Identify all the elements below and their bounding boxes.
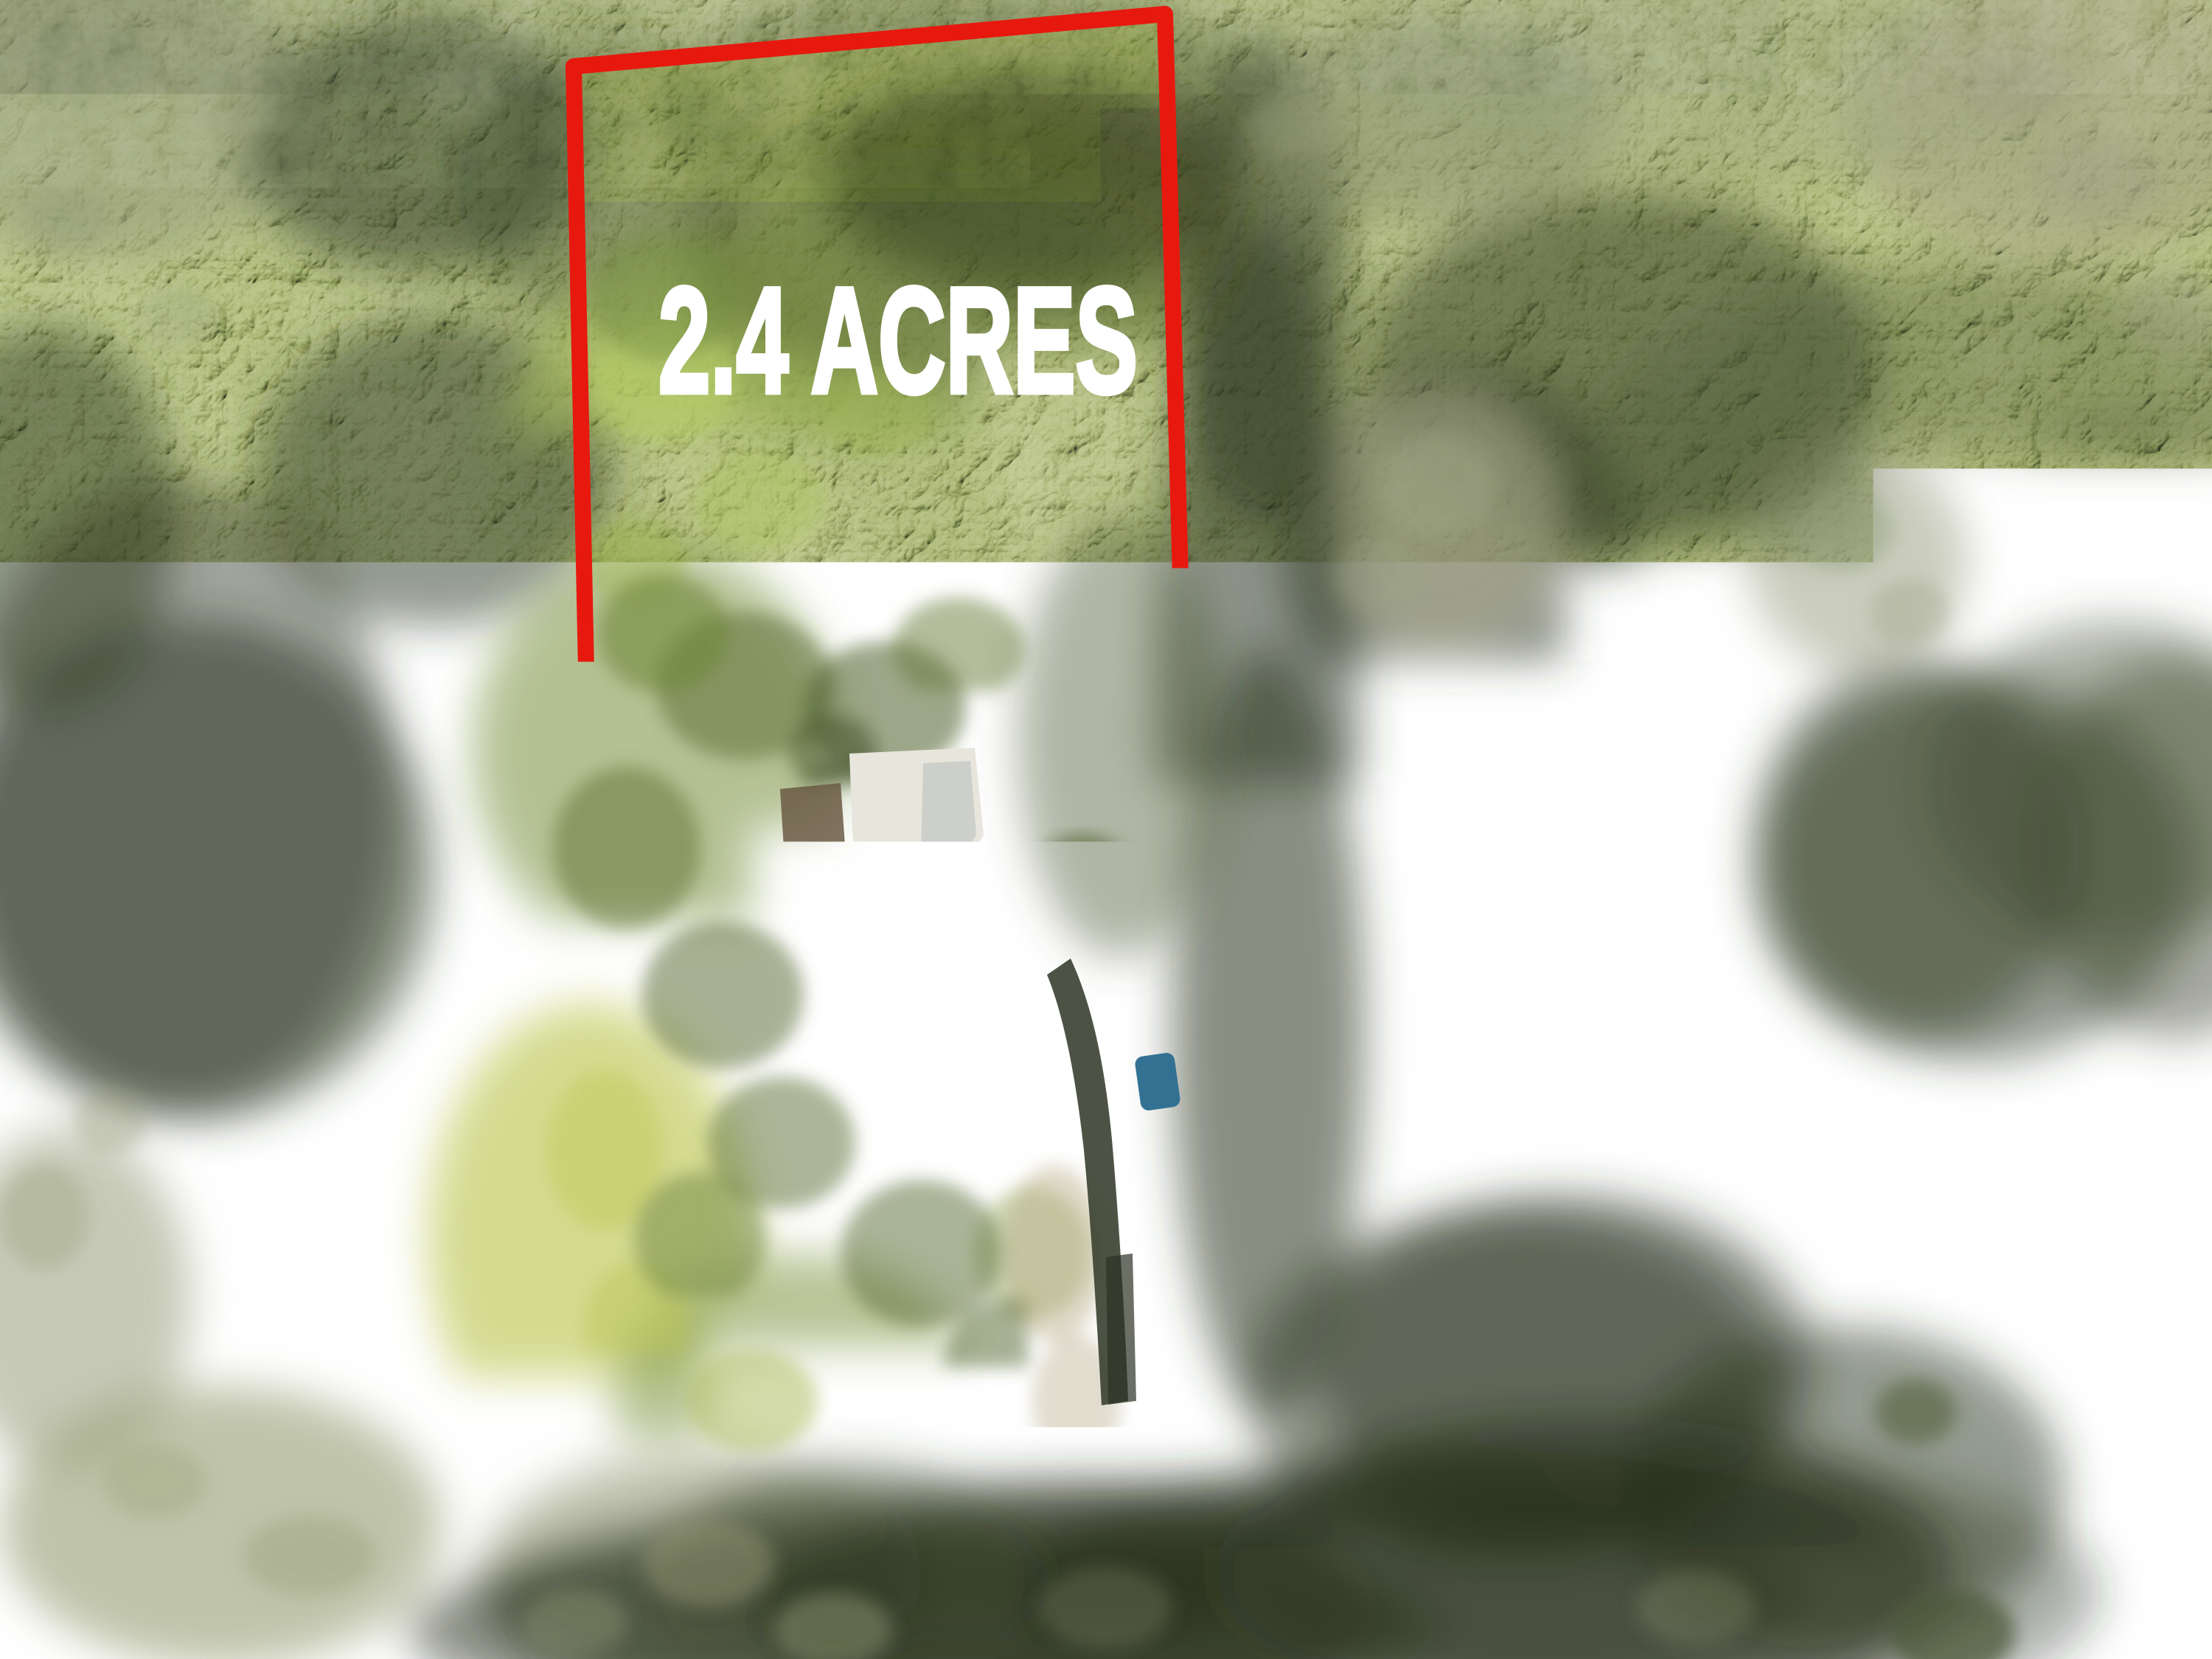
svg-text:DMLS: DMLS <box>6 1555 149 1613</box>
svg-text:2.4 ACRES: 2.4 ACRES <box>658 257 1138 425</box>
